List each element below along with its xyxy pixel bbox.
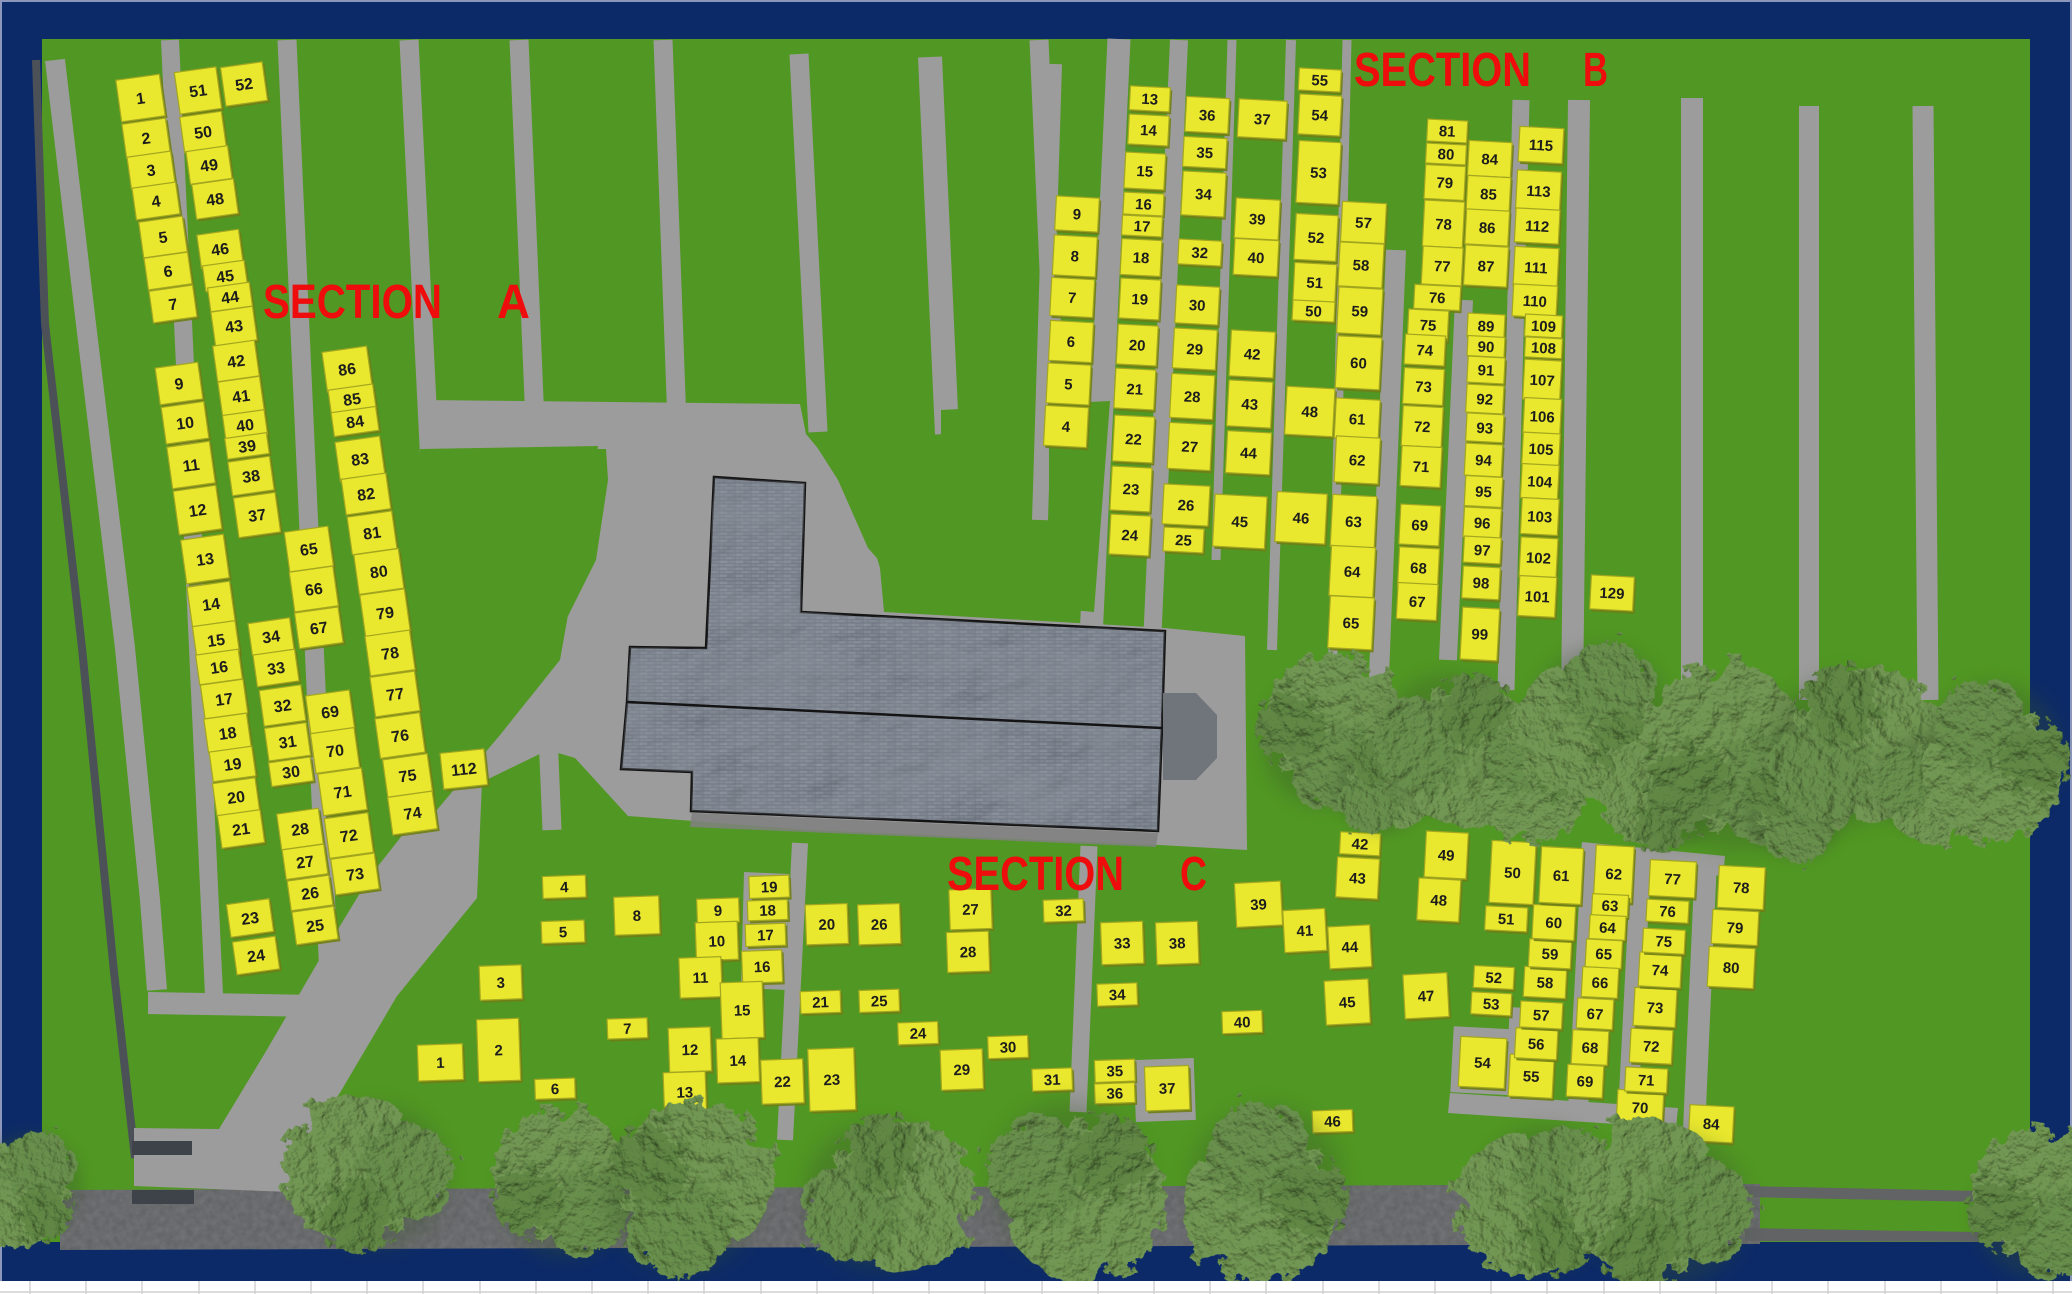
svg-text:106: 106 <box>1529 408 1555 426</box>
svg-text:33: 33 <box>266 660 286 679</box>
svg-text:6: 6 <box>1066 334 1075 351</box>
svg-text:51: 51 <box>188 82 208 101</box>
svg-text:42: 42 <box>226 353 246 372</box>
svg-text:94: 94 <box>1475 452 1493 470</box>
svg-text:17: 17 <box>757 927 774 945</box>
svg-text:17: 17 <box>1133 218 1151 236</box>
svg-text:16: 16 <box>1135 196 1153 214</box>
svg-text:19: 19 <box>761 879 778 897</box>
svg-text:77: 77 <box>1433 258 1451 276</box>
svg-text:90: 90 <box>1477 338 1495 356</box>
svg-text:32: 32 <box>273 697 293 716</box>
svg-text:63: 63 <box>1345 513 1363 531</box>
svg-text:80: 80 <box>1437 146 1455 164</box>
svg-text:18: 18 <box>218 725 238 744</box>
svg-text:36: 36 <box>1198 107 1216 125</box>
svg-text:12: 12 <box>188 502 208 521</box>
svg-text:49: 49 <box>1437 847 1455 865</box>
svg-text:37: 37 <box>1159 1080 1176 1098</box>
svg-text:21: 21 <box>1126 381 1144 399</box>
svg-text:113: 113 <box>1526 183 1551 201</box>
svg-text:78: 78 <box>380 645 400 664</box>
svg-text:103: 103 <box>1527 508 1553 526</box>
svg-text:35: 35 <box>1106 1063 1123 1081</box>
svg-text:72: 72 <box>1642 1038 1660 1056</box>
svg-text:23: 23 <box>1122 481 1140 499</box>
svg-text:72: 72 <box>339 827 359 846</box>
svg-text:110: 110 <box>1522 293 1547 311</box>
svg-text:78: 78 <box>1732 879 1750 897</box>
svg-text:9: 9 <box>1072 206 1081 223</box>
svg-text:71: 71 <box>1412 458 1430 476</box>
svg-text:43: 43 <box>224 318 244 337</box>
svg-text:64: 64 <box>1599 919 1617 937</box>
svg-text:45: 45 <box>1231 513 1249 531</box>
svg-text:84: 84 <box>1481 151 1499 169</box>
svg-text:84: 84 <box>345 413 365 432</box>
svg-text:62: 62 <box>1605 866 1623 884</box>
svg-text:35: 35 <box>1196 144 1214 162</box>
svg-text:89: 89 <box>1477 318 1495 336</box>
svg-text:76: 76 <box>1659 903 1677 921</box>
svg-text:101: 101 <box>1524 588 1550 606</box>
svg-text:56: 56 <box>1527 1036 1545 1054</box>
svg-text:A: A <box>497 276 530 329</box>
svg-text:99: 99 <box>1471 626 1489 644</box>
svg-text:85: 85 <box>1480 186 1498 204</box>
svg-text:80: 80 <box>369 563 389 582</box>
svg-text:47: 47 <box>1417 988 1435 1006</box>
svg-text:42: 42 <box>1243 346 1261 364</box>
svg-text:55: 55 <box>1522 1068 1540 1086</box>
svg-text:31: 31 <box>278 733 298 752</box>
svg-text:27: 27 <box>295 853 315 872</box>
svg-text:53: 53 <box>1482 996 1500 1014</box>
svg-text:58: 58 <box>1536 974 1554 992</box>
svg-text:15: 15 <box>733 1002 750 1020</box>
svg-text:34: 34 <box>1195 186 1213 204</box>
svg-text:22: 22 <box>774 1074 791 1092</box>
svg-text:63: 63 <box>1601 897 1619 915</box>
svg-text:51: 51 <box>1497 911 1515 929</box>
svg-text:25: 25 <box>871 993 888 1011</box>
svg-text:30: 30 <box>999 1039 1016 1057</box>
svg-text:8: 8 <box>632 908 641 925</box>
svg-text:59: 59 <box>1541 946 1559 964</box>
svg-text:32: 32 <box>1191 244 1209 262</box>
svg-text:13: 13 <box>1141 91 1159 109</box>
svg-text:17: 17 <box>214 691 234 710</box>
svg-text:26: 26 <box>1177 497 1195 515</box>
svg-text:79: 79 <box>1726 919 1744 937</box>
svg-text:97: 97 <box>1473 542 1491 560</box>
svg-text:50: 50 <box>193 124 213 143</box>
svg-text:51: 51 <box>1306 274 1324 292</box>
svg-text:44: 44 <box>1240 445 1258 463</box>
svg-text:39: 39 <box>1250 896 1268 914</box>
svg-text:80: 80 <box>1722 959 1740 977</box>
svg-text:28: 28 <box>959 944 976 962</box>
svg-text:3: 3 <box>496 975 505 992</box>
svg-text:105: 105 <box>1528 441 1554 459</box>
svg-text:20: 20 <box>818 916 835 934</box>
svg-text:34: 34 <box>1109 987 1127 1005</box>
svg-text:21: 21 <box>231 821 251 840</box>
svg-text:48: 48 <box>205 191 225 210</box>
svg-text:85: 85 <box>342 391 362 410</box>
svg-text:25: 25 <box>1175 532 1193 550</box>
svg-text:73: 73 <box>1646 999 1664 1017</box>
svg-text:37: 37 <box>247 507 267 526</box>
svg-text:21: 21 <box>812 994 829 1012</box>
svg-text:112: 112 <box>1525 218 1550 236</box>
svg-text:60: 60 <box>1545 914 1563 932</box>
svg-text:16: 16 <box>209 659 229 678</box>
svg-text:14: 14 <box>201 596 221 615</box>
svg-text:62: 62 <box>1348 452 1366 470</box>
svg-text:102: 102 <box>1526 550 1552 568</box>
svg-text:68: 68 <box>1581 1039 1599 1057</box>
svg-text:65: 65 <box>1342 615 1360 633</box>
svg-text:19: 19 <box>1131 291 1149 309</box>
svg-text:73: 73 <box>1415 378 1433 396</box>
svg-text:74: 74 <box>1416 342 1434 360</box>
svg-text:69: 69 <box>1411 517 1429 535</box>
svg-text:92: 92 <box>1476 391 1494 409</box>
svg-text:23: 23 <box>823 1072 840 1090</box>
svg-text:81: 81 <box>362 524 382 543</box>
svg-text:30: 30 <box>281 763 301 782</box>
svg-text:20: 20 <box>1128 337 1146 355</box>
svg-text:46: 46 <box>210 241 230 260</box>
svg-text:71: 71 <box>333 783 353 802</box>
svg-text:81: 81 <box>1438 123 1456 141</box>
svg-text:57: 57 <box>1355 214 1373 232</box>
svg-text:74: 74 <box>1651 962 1669 980</box>
svg-text:40: 40 <box>1247 249 1265 267</box>
svg-text:46: 46 <box>1324 1113 1341 1131</box>
svg-text:SECTION: SECTION <box>947 848 1124 901</box>
svg-text:4: 4 <box>1061 419 1071 436</box>
svg-text:30: 30 <box>1188 297 1206 315</box>
svg-text:58: 58 <box>1352 257 1370 275</box>
svg-text:7: 7 <box>1068 290 1077 307</box>
svg-text:77: 77 <box>1664 871 1682 889</box>
svg-text:48: 48 <box>1430 892 1448 910</box>
svg-text:18: 18 <box>1132 249 1150 267</box>
svg-text:15: 15 <box>1136 163 1154 181</box>
svg-text:29: 29 <box>953 1062 970 1080</box>
svg-text:11: 11 <box>692 970 708 988</box>
svg-text:75: 75 <box>398 767 418 786</box>
svg-text:111: 111 <box>1524 259 1548 277</box>
svg-text:109: 109 <box>1531 318 1557 336</box>
svg-text:52: 52 <box>1307 229 1325 247</box>
svg-text:104: 104 <box>1527 473 1554 491</box>
svg-text:66: 66 <box>1591 974 1609 992</box>
svg-text:75: 75 <box>1655 933 1673 951</box>
svg-text:64: 64 <box>1343 563 1361 581</box>
svg-text:48: 48 <box>1301 403 1319 421</box>
svg-text:32: 32 <box>1055 903 1072 921</box>
svg-text:76: 76 <box>1428 289 1446 307</box>
svg-text:129: 129 <box>1599 585 1625 603</box>
svg-text:74: 74 <box>403 805 423 824</box>
svg-text:39: 39 <box>1248 211 1266 229</box>
svg-text:61: 61 <box>1552 867 1570 885</box>
svg-text:38: 38 <box>241 468 261 487</box>
svg-text:50: 50 <box>1504 864 1522 882</box>
svg-text:34: 34 <box>261 628 281 647</box>
svg-text:87: 87 <box>1477 258 1495 276</box>
svg-text:25: 25 <box>305 917 325 936</box>
svg-text:SECTION: SECTION <box>1354 44 1531 97</box>
svg-text:72: 72 <box>1413 418 1431 436</box>
svg-text:10: 10 <box>175 414 195 433</box>
svg-text:44: 44 <box>220 289 240 308</box>
svg-text:84: 84 <box>1702 1116 1720 1134</box>
svg-text:13: 13 <box>195 551 215 570</box>
svg-text:33: 33 <box>1114 935 1131 953</box>
svg-text:19: 19 <box>223 756 243 775</box>
svg-text:43: 43 <box>1241 396 1259 414</box>
svg-text:29: 29 <box>1186 341 1204 359</box>
svg-text:39: 39 <box>237 438 257 457</box>
svg-text:49: 49 <box>199 157 219 176</box>
svg-text:66: 66 <box>304 581 324 600</box>
svg-text:86: 86 <box>1478 219 1496 237</box>
svg-text:108: 108 <box>1531 340 1557 358</box>
svg-text:67: 67 <box>1586 1006 1604 1024</box>
svg-text:41: 41 <box>1296 922 1314 940</box>
svg-text:2: 2 <box>494 1042 503 1059</box>
svg-text:26: 26 <box>871 916 888 934</box>
svg-text:5: 5 <box>559 924 568 941</box>
svg-text:69: 69 <box>1576 1073 1594 1091</box>
svg-text:37: 37 <box>1253 111 1271 129</box>
svg-text:53: 53 <box>1310 164 1328 182</box>
svg-text:36: 36 <box>1106 1085 1123 1103</box>
svg-text:65: 65 <box>299 541 319 560</box>
svg-text:69: 69 <box>320 703 340 722</box>
svg-text:20: 20 <box>226 789 246 808</box>
svg-text:96: 96 <box>1473 515 1491 533</box>
svg-text:83: 83 <box>350 451 370 470</box>
svg-text:93: 93 <box>1476 420 1494 438</box>
svg-text:54: 54 <box>1311 107 1329 125</box>
svg-text:82: 82 <box>356 486 376 505</box>
svg-text:6: 6 <box>551 1081 560 1098</box>
svg-text:14: 14 <box>729 1052 747 1070</box>
svg-text:115: 115 <box>1528 137 1553 155</box>
svg-text:41: 41 <box>231 388 251 407</box>
svg-text:70: 70 <box>1631 1099 1649 1117</box>
svg-text:12: 12 <box>681 1042 698 1060</box>
svg-text:65: 65 <box>1595 946 1613 964</box>
svg-text:91: 91 <box>1477 362 1495 380</box>
svg-text:79: 79 <box>1436 174 1454 192</box>
svg-text:68: 68 <box>1410 560 1428 578</box>
svg-text:95: 95 <box>1475 483 1493 501</box>
svg-text:55: 55 <box>1311 72 1329 90</box>
svg-text:40: 40 <box>235 417 255 436</box>
svg-text:50: 50 <box>1305 303 1323 321</box>
svg-text:9: 9 <box>714 903 723 920</box>
svg-text:31: 31 <box>1044 1072 1061 1090</box>
svg-text:SECTION: SECTION <box>263 276 442 329</box>
svg-text:75: 75 <box>1419 317 1437 335</box>
svg-text:98: 98 <box>1472 575 1490 593</box>
svg-text:86: 86 <box>337 361 357 380</box>
svg-text:40: 40 <box>1234 1014 1251 1032</box>
svg-text:15: 15 <box>206 632 226 651</box>
svg-text:79: 79 <box>375 604 395 623</box>
svg-text:28: 28 <box>1183 388 1201 406</box>
svg-text:27: 27 <box>1181 438 1199 456</box>
svg-text:45: 45 <box>1338 994 1356 1012</box>
svg-text:B: B <box>1583 44 1608 97</box>
svg-text:22: 22 <box>1125 431 1143 449</box>
svg-text:112: 112 <box>450 760 478 780</box>
svg-text:26: 26 <box>300 885 320 904</box>
svg-text:11: 11 <box>182 457 201 476</box>
svg-text:16: 16 <box>753 959 770 977</box>
svg-text:C: C <box>1180 848 1207 901</box>
svg-text:24: 24 <box>246 947 266 966</box>
svg-text:59: 59 <box>1351 303 1369 321</box>
svg-text:60: 60 <box>1350 355 1368 373</box>
svg-text:107: 107 <box>1529 372 1555 390</box>
svg-text:76: 76 <box>390 727 410 746</box>
svg-text:13: 13 <box>676 1084 693 1102</box>
svg-text:8: 8 <box>1070 248 1079 265</box>
svg-text:23: 23 <box>240 910 260 929</box>
svg-text:52: 52 <box>1485 969 1503 987</box>
svg-text:73: 73 <box>345 866 365 885</box>
svg-text:10: 10 <box>708 933 725 951</box>
svg-text:5: 5 <box>1064 376 1073 393</box>
svg-text:71: 71 <box>1637 1072 1655 1090</box>
svg-text:54: 54 <box>1474 1054 1492 1072</box>
svg-text:52: 52 <box>234 76 254 95</box>
svg-text:77: 77 <box>385 686 405 705</box>
svg-text:67: 67 <box>1408 593 1426 611</box>
svg-text:78: 78 <box>1435 216 1453 234</box>
svg-text:57: 57 <box>1532 1007 1550 1025</box>
svg-text:42: 42 <box>1351 836 1369 854</box>
svg-text:4: 4 <box>560 879 570 896</box>
svg-text:61: 61 <box>1348 411 1366 429</box>
svg-text:14: 14 <box>1140 122 1158 140</box>
svg-text:24: 24 <box>909 1025 927 1043</box>
svg-text:43: 43 <box>1349 870 1367 888</box>
svg-text:18: 18 <box>759 902 776 920</box>
svg-text:44: 44 <box>1341 939 1359 957</box>
svg-text:7: 7 <box>623 1021 632 1038</box>
svg-text:46: 46 <box>1292 510 1310 528</box>
svg-text:28: 28 <box>290 821 310 840</box>
svg-text:27: 27 <box>962 901 979 919</box>
svg-text:67: 67 <box>309 619 329 638</box>
svg-text:70: 70 <box>325 742 345 761</box>
svg-text:38: 38 <box>1169 935 1186 953</box>
svg-text:24: 24 <box>1121 527 1139 545</box>
svg-text:1: 1 <box>436 1055 445 1072</box>
